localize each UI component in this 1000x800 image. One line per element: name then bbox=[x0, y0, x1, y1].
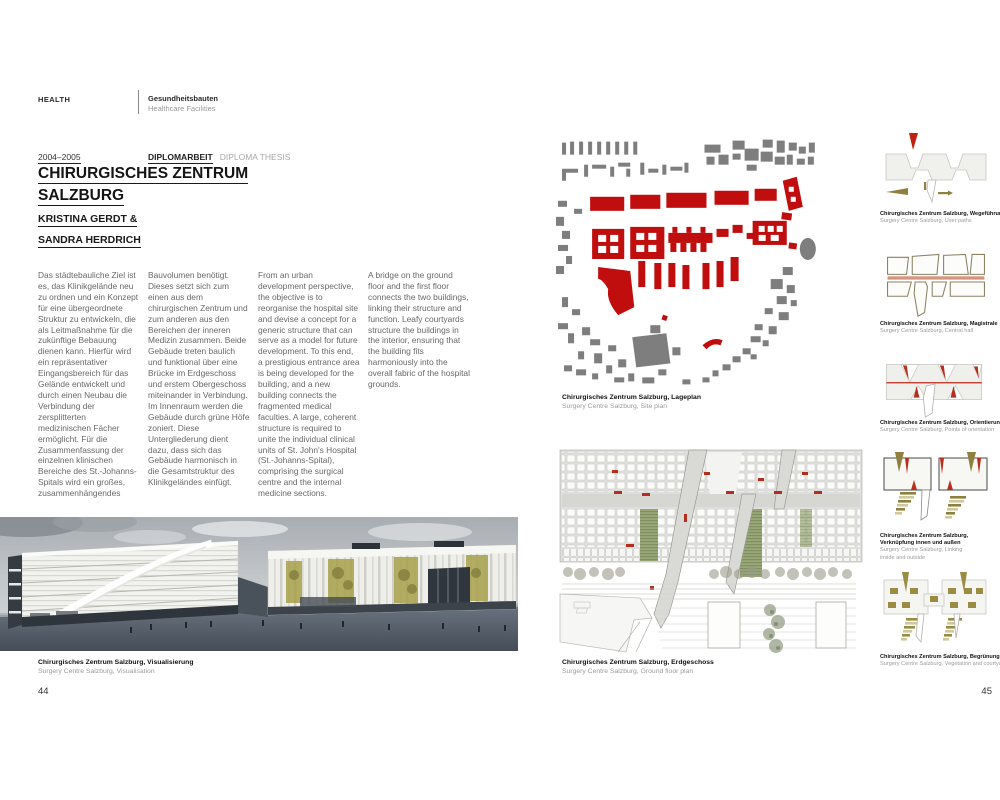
diagram-user-paths bbox=[880, 128, 992, 208]
diagram-linking bbox=[880, 450, 992, 530]
diagram-central-hall-graphic bbox=[880, 244, 992, 320]
category-en: Healthcare Facilities bbox=[148, 104, 218, 113]
floor-plan-image bbox=[556, 436, 866, 654]
project-title-line2: SALZBURG bbox=[38, 187, 124, 206]
site-plan-caption: Chirurgisches Zentrum Salzburg, Lageplan… bbox=[562, 394, 701, 411]
site-plan-graphic bbox=[556, 138, 862, 390]
category-de: Gesundheitsbauten bbox=[148, 94, 218, 103]
body-column-de-2: Bauvolumen benötigt. Dieses setzt sich z… bbox=[148, 270, 250, 488]
header-divider bbox=[138, 90, 139, 114]
diagram-user-paths-caption: Chirurgisches Zentrum Salzburg, Wegeführ… bbox=[880, 211, 1000, 225]
diagram-orientation-caption: Chirurgisches Zentrum Salzburg, Orientie… bbox=[880, 420, 1000, 434]
authors: KRISTINA GERDT & SANDRA HERDRICH bbox=[38, 209, 238, 250]
body-column-en-2: A bridge on the ground floor and the fir… bbox=[368, 270, 470, 390]
project-title: CHIRURGISCHES ZENTRUM SALZBURG bbox=[38, 165, 298, 209]
page-number-right: 45 bbox=[940, 686, 992, 697]
diagram-orientation bbox=[880, 349, 992, 419]
floor-plan-caption: Chirurgisches Zentrum Salzburg, Erdgesch… bbox=[562, 659, 714, 676]
diagram-central-hall bbox=[880, 244, 992, 320]
floor-plan-graphic bbox=[556, 436, 866, 654]
author-line1: KRISTINA GERDT & bbox=[38, 214, 137, 227]
visualization-image bbox=[0, 517, 518, 651]
diagram-vegetation bbox=[880, 566, 992, 648]
section-label: HEALTH bbox=[38, 95, 70, 104]
visualization-caption: Chirurgisches Zentrum Salzburg, Visualis… bbox=[38, 659, 193, 676]
body-column-en-1: From an urban development perspective, t… bbox=[258, 270, 360, 499]
years-label: 2004–2005 bbox=[38, 147, 81, 165]
thesis-type-en: DIPLOMA THESIS bbox=[220, 152, 291, 162]
site-plan-image bbox=[556, 138, 862, 390]
diagram-orientation-graphic bbox=[880, 349, 992, 419]
visualization-graphic bbox=[0, 517, 518, 651]
category-block: Gesundheitsbauten Healthcare Facilities bbox=[148, 94, 218, 113]
diagram-linking-graphic bbox=[880, 450, 992, 530]
author-line2: SANDRA HERDRICH bbox=[38, 235, 141, 248]
diagram-vegetation-graphic bbox=[880, 566, 992, 648]
page-number-left: 44 bbox=[38, 686, 49, 697]
diagram-vegetation-caption: Chirurgisches Zentrum Salzburg, Begrünun… bbox=[880, 654, 1000, 668]
book-spread: HEALTH Gesundheitsbauten Healthcare Faci… bbox=[0, 0, 1000, 800]
body-column-de-1: Das städtebauliche Ziel ist es, das Klin… bbox=[38, 270, 140, 499]
diagram-linking-caption: Chirurgisches Zentrum Salzburg, Verknüpf… bbox=[880, 533, 970, 562]
project-title-line1: CHIRURGISCHES ZENTRUM bbox=[38, 165, 248, 184]
thesis-type: DIPLOMARBEITDIPLOMA THESIS bbox=[148, 147, 290, 165]
diagram-central-hall-caption: Chirurgisches Zentrum Salzburg, Magistra… bbox=[880, 321, 1000, 335]
diagram-user-paths-graphic bbox=[880, 128, 992, 208]
thesis-type-de: DIPLOMARBEIT bbox=[148, 152, 213, 164]
